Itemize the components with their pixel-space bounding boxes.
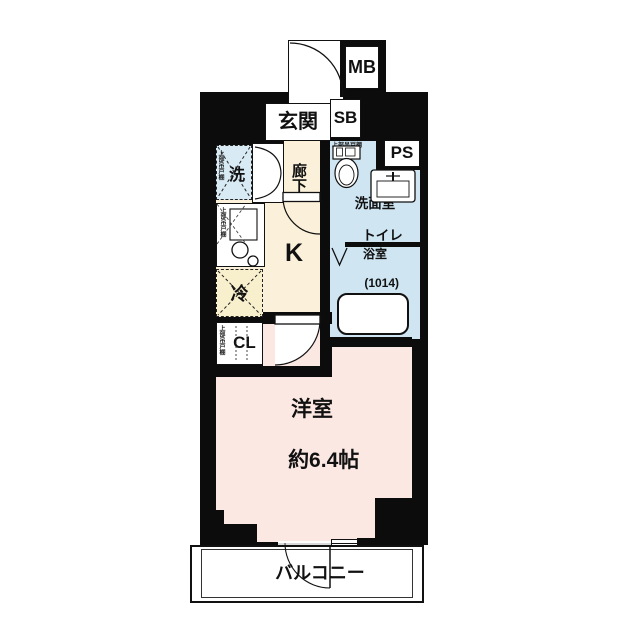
meter-box-label: MB — [348, 57, 376, 79]
hallway-label-text: 廊下 — [289, 163, 307, 193]
genkan-box: 玄関 — [265, 103, 331, 141]
washer-label: 洗 — [229, 161, 245, 185]
meter-box: MB — [345, 46, 379, 89]
upper-cabinet-note-kitchen: 上部吊戸棚 — [219, 207, 225, 257]
laundry-door-area — [252, 143, 284, 203]
kitchen-label-text: K — [285, 238, 303, 268]
kitchen-label: K — [278, 238, 310, 268]
bath-bottom-wall — [320, 337, 412, 347]
shoe-box: SB — [330, 99, 361, 138]
entrance-bay — [288, 40, 344, 104]
genkan-label: 玄関 — [278, 110, 318, 134]
fridge-box: 冷 — [216, 269, 263, 317]
kitchen-room-wall — [263, 312, 332, 324]
balcony-label: バルコニー — [240, 560, 400, 588]
upper-cabinet-note-closet: 上部吊戸棚 — [218, 325, 224, 363]
upper-cabinet-note-toilet: 上部吊戸棚 — [332, 140, 362, 149]
wall-step-left-2 — [216, 524, 257, 542]
upper-cabinet-note-washer: 上部吊戸棚 — [217, 150, 223, 196]
main-room-floor-a — [263, 324, 320, 366]
pipe-space-box: PS — [384, 140, 420, 167]
wall-step-right-1 — [375, 498, 412, 542]
bathroom-label: 浴室 (1014) — [332, 252, 418, 286]
fridge-label: 冷 — [231, 280, 249, 306]
main-room-label-1: 洋室 — [291, 398, 333, 421]
washroom-label-2: トイレ — [362, 228, 403, 243]
hallway-label: 廊下 — [286, 148, 310, 208]
wall-step-right-2 — [357, 538, 412, 543]
closet-label: CL — [233, 333, 256, 353]
washroom-label-1: 洗面室 — [355, 196, 396, 211]
closet-bottom-wall — [213, 365, 275, 377]
bathroom-label-1: 浴室 — [363, 247, 387, 261]
main-room-label: 洋室 約6.4帖 — [232, 406, 392, 464]
pipe-space-label: PS — [391, 143, 414, 163]
shoe-box-label: SB — [334, 108, 358, 128]
main-room-floor-c — [332, 347, 412, 377]
bathtub — [337, 293, 409, 335]
floor-plan: MB 玄関 SB PS 上部吊戸棚 洗面室 トイレ 浴室 (1014) 廊下 K… — [0, 0, 640, 640]
bathroom-label-2: (1014) — [364, 276, 399, 290]
washroom-label: 洗面室 トイレ — [330, 200, 420, 240]
balcony-label-text: バルコニー — [275, 563, 365, 585]
main-room-label-2: 約6.4帖 — [288, 449, 359, 472]
